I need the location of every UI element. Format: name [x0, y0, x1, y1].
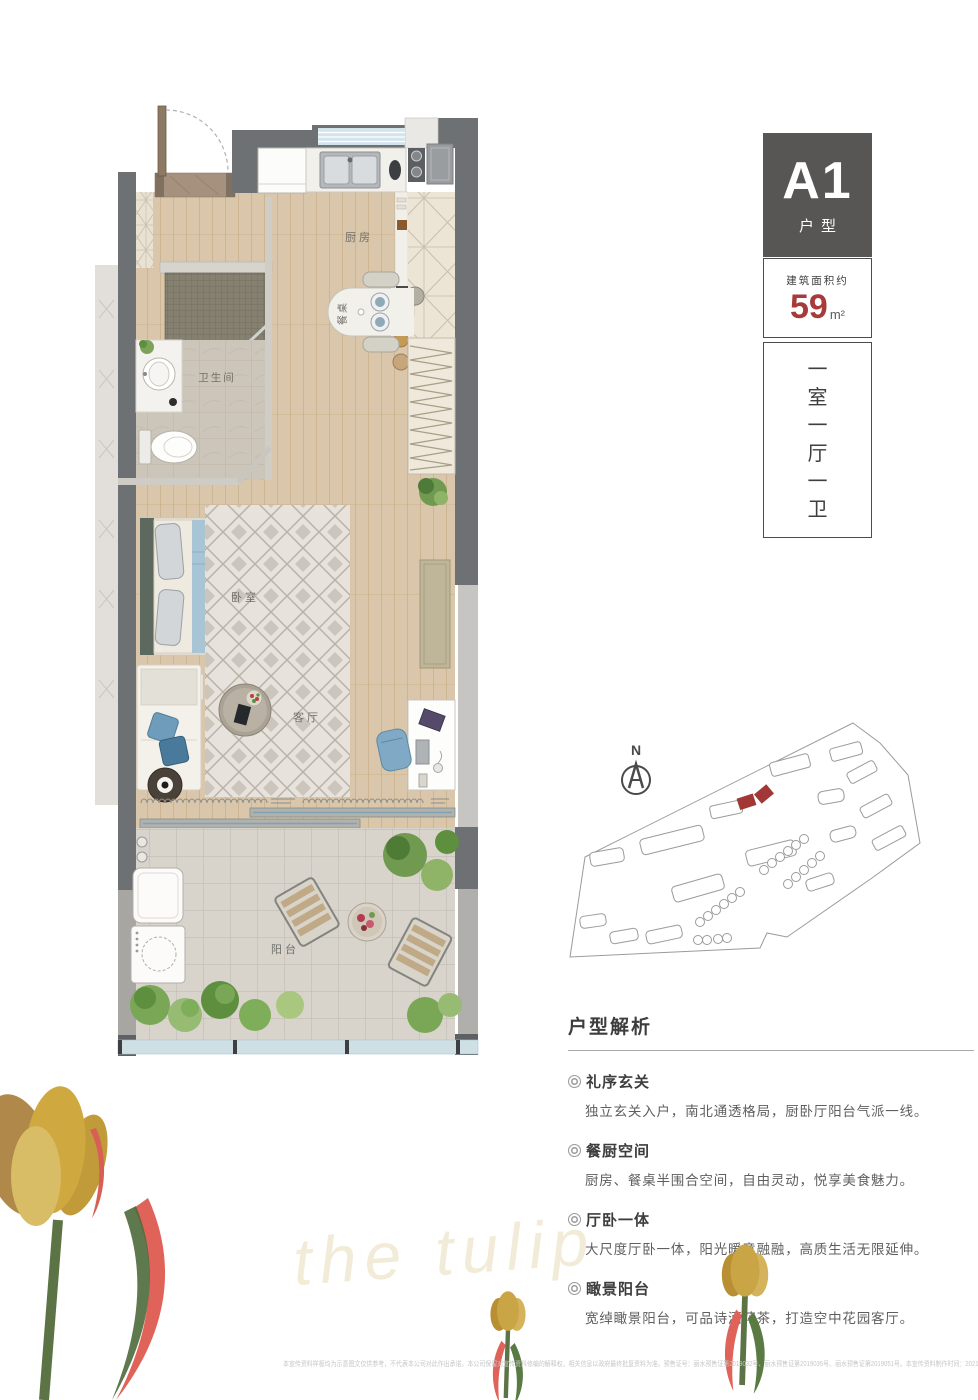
vanity-sink: [136, 340, 182, 412]
page: 厨房 餐桌 卫生间 卧室 客厅 阳台 A1 户型 建筑面积约 59 m² 一 室…: [0, 0, 978, 1400]
glass-railing: [118, 1040, 478, 1054]
kitchen-label: 厨房: [345, 231, 373, 244]
layout-char: 一: [808, 416, 828, 436]
wall-light-right: [458, 585, 478, 827]
floor-plan: 厨房 餐桌 卫生间 卧室 客厅 阳台: [95, 100, 480, 1060]
floor-speaker: [148, 768, 182, 802]
layout-box: 一 室 一 厅 一 卫: [763, 342, 872, 538]
living-rug: [205, 505, 350, 797]
inner-wall: [265, 197, 272, 480]
dining-label: 餐桌: [336, 301, 349, 325]
site-plan: N: [560, 700, 978, 1000]
oven: [427, 144, 453, 184]
entry-mat: [155, 173, 235, 197]
unit-code-badge: A1 户型: [763, 133, 872, 257]
toilet: [139, 430, 197, 464]
bathroom-wall: [118, 478, 240, 485]
stove: [408, 148, 425, 182]
outside-strip: [95, 265, 118, 805]
desk: [408, 700, 455, 790]
sideboard: [420, 560, 450, 668]
kitchen-sink: [320, 152, 380, 188]
cabinet-column: [408, 192, 455, 338]
wardrobe: [408, 338, 455, 474]
wall-light-right2: [458, 889, 478, 1034]
analysis-title: 户型解析: [568, 1012, 974, 1039]
coffee-table: [219, 684, 271, 736]
area-box: 建筑面积约 59 m²: [763, 258, 872, 338]
dryer: [131, 926, 185, 983]
bathroom-label: 卫生间: [198, 371, 236, 384]
dining-chair: [363, 272, 399, 287]
door-swing-arc: [166, 110, 228, 172]
layout-char: 卫: [808, 500, 828, 520]
fridge: [258, 148, 306, 193]
area-unit: m²: [830, 307, 845, 322]
living-label: 客厅: [293, 710, 321, 724]
unit-code-suffix: 户型: [792, 215, 843, 236]
washer: [133, 868, 183, 923]
kitchen-window: [318, 128, 405, 145]
area-label: 建筑面积约: [786, 273, 849, 288]
balcony-label: 阳台: [271, 942, 299, 956]
large-tulip: [0, 1083, 165, 1400]
north-label: N: [631, 742, 641, 758]
building-outlines: [579, 741, 907, 945]
layout-char: 室: [808, 388, 828, 408]
highlighted-building: [737, 784, 774, 810]
flower-table: [348, 903, 386, 941]
layout-char: 一: [808, 360, 828, 380]
dining-chair: [363, 337, 399, 352]
bedroom-label: 卧室: [231, 590, 259, 604]
analysis-divider: [568, 1050, 974, 1051]
unit-info-panel: A1 户型 建筑面积约 59 m² 一 室 一 厅 一 卫: [763, 133, 872, 538]
site-boundary: [570, 723, 920, 957]
entry-door: [158, 106, 228, 176]
area-value: 59: [790, 290, 828, 324]
script-text: the tulip: [291, 1204, 599, 1299]
disclaimer-text: 本宣传资料样板均为示意图文仅供参考，不代表本公司对此作出承诺。本公司保留对宣传资…: [283, 1359, 874, 1369]
north-arrow-icon: N: [622, 742, 650, 794]
shoe-cabinet: [136, 192, 153, 268]
layout-char: 一: [808, 472, 828, 492]
tulip-illustration: the tulip: [0, 1080, 840, 1400]
unit-code: A1: [782, 155, 852, 207]
kettle: [389, 160, 401, 180]
layout-char: 厅: [808, 444, 828, 464]
